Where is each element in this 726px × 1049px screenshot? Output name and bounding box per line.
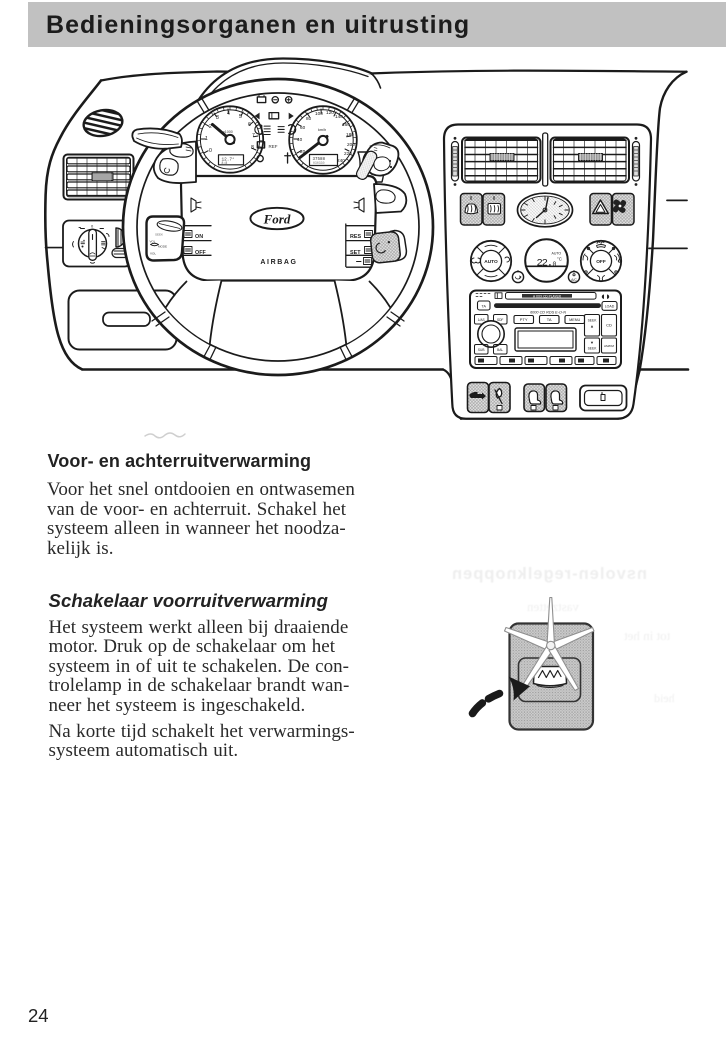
svg-text:1/AS: 1/AS bbox=[478, 318, 485, 322]
svg-text:1: 1 bbox=[205, 136, 208, 142]
svg-text:°C: °C bbox=[557, 257, 562, 262]
svg-text:TA: TA bbox=[482, 304, 487, 308]
svg-text:▼: ▼ bbox=[590, 340, 594, 345]
svg-text:CD: CD bbox=[606, 323, 612, 328]
svg-text:7: 7 bbox=[252, 133, 255, 139]
svg-text:140: 140 bbox=[335, 114, 343, 119]
svg-text:SDF: SDF bbox=[497, 318, 503, 322]
svg-text:VOL: VOL bbox=[150, 252, 156, 256]
svg-text:80: 80 bbox=[306, 116, 312, 121]
svg-text:LOAD: LOAD bbox=[605, 305, 615, 309]
svg-text:8:8: 8:8 bbox=[222, 161, 228, 165]
svg-text:SEEK: SEEK bbox=[588, 347, 598, 351]
svg-text:TA: TA bbox=[547, 317, 552, 322]
svg-text:220: 220 bbox=[344, 151, 352, 156]
svg-text:PTY: PTY bbox=[520, 317, 528, 322]
svg-text:3: 3 bbox=[216, 115, 219, 121]
svg-text:Ford: Ford bbox=[263, 212, 291, 227]
svg-text:22.: 22. bbox=[537, 257, 554, 269]
svg-text:BAL: BAL bbox=[497, 348, 503, 352]
svg-text:6: 6 bbox=[248, 122, 251, 128]
svg-text:SEEK: SEEK bbox=[588, 319, 598, 323]
svg-text:A XXX CD PLAYER: A XXX CD PLAYER bbox=[533, 294, 562, 298]
svg-text:160: 160 bbox=[342, 122, 350, 127]
svg-text:4: 4 bbox=[227, 111, 230, 117]
svg-text:km/h: km/h bbox=[318, 128, 326, 132]
svg-text:ON: ON bbox=[195, 234, 203, 240]
svg-text:MODE: MODE bbox=[158, 245, 167, 249]
svg-text:180: 180 bbox=[346, 132, 354, 137]
svg-text:A/C: A/C bbox=[571, 278, 577, 282]
svg-text:▲: ▲ bbox=[590, 324, 594, 329]
svg-text:AIRBAG: AIRBAG bbox=[260, 259, 297, 266]
svg-text:120: 120 bbox=[326, 110, 334, 115]
svg-text:MENU: MENU bbox=[569, 318, 580, 322]
svg-text:200: 200 bbox=[347, 142, 355, 147]
svg-text:5: 5 bbox=[239, 114, 242, 120]
svg-text:OFF: OFF bbox=[596, 259, 606, 265]
svg-text:6000 CD RDS E-O-N: 6000 CD RDS E-O-N bbox=[530, 310, 566, 314]
svg-text:0: 0 bbox=[553, 261, 557, 268]
svg-text:030330: 030330 bbox=[313, 161, 325, 165]
svg-text:SEEK: SEEK bbox=[155, 233, 163, 237]
svg-text:AM/FM: AM/FM bbox=[604, 344, 614, 348]
svg-text:100: 100 bbox=[315, 111, 323, 116]
svg-text:40: 40 bbox=[297, 137, 303, 142]
svg-text:0: 0 bbox=[209, 148, 212, 154]
svg-text:RES: RES bbox=[350, 234, 361, 240]
svg-text:SUB: SUB bbox=[478, 348, 485, 352]
svg-text:60: 60 bbox=[300, 125, 306, 130]
svg-text:8: 8 bbox=[251, 145, 254, 151]
svg-text:AUTO: AUTO bbox=[484, 259, 498, 265]
svg-text:AUTO: AUTO bbox=[552, 252, 562, 256]
svg-text:REF: REF bbox=[269, 144, 278, 149]
svg-text:240: 240 bbox=[337, 158, 345, 163]
